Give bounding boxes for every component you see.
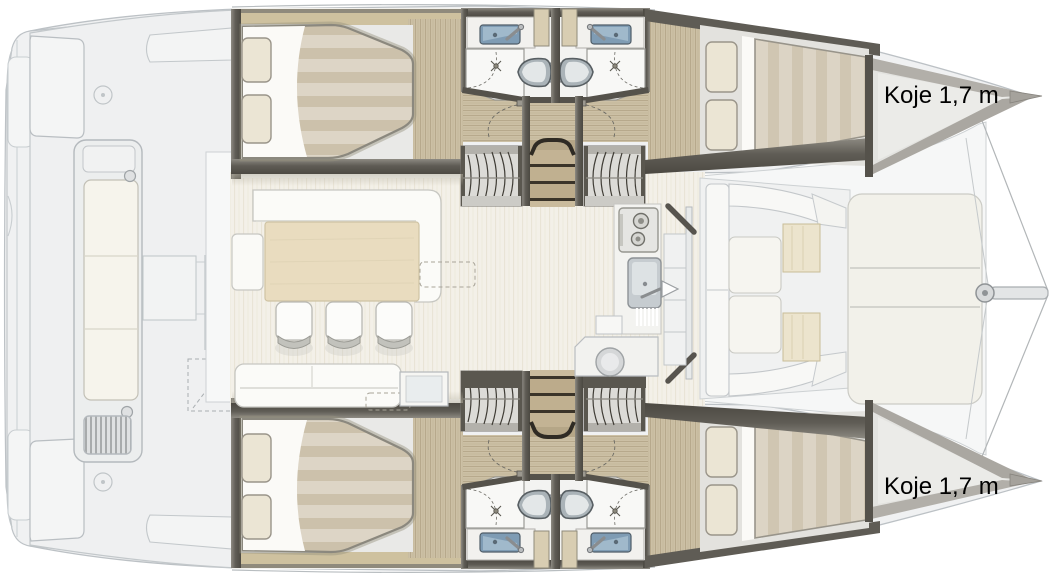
svg-text:Koje 1,7 m: Koje 1,7 m xyxy=(884,82,999,109)
svg-text:Koje 1,7 m: Koje 1,7 m xyxy=(884,473,999,500)
